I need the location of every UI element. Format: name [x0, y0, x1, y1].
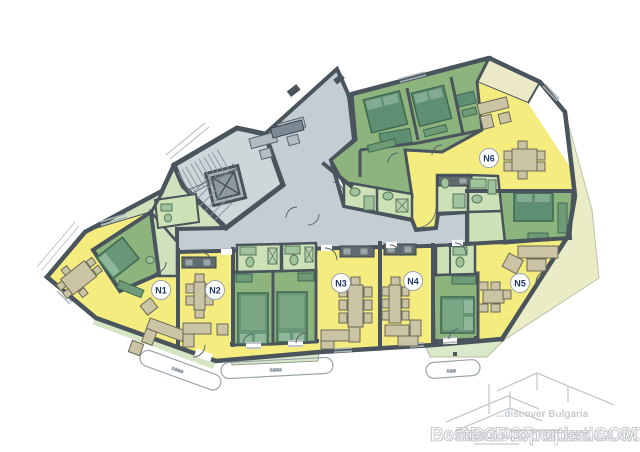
svg-text:1.2x6.8: 1.2x6.8 [270, 368, 282, 372]
svg-text:1.2x3: 1.2x3 [447, 369, 456, 373]
svg-text:N2: N2 [209, 286, 221, 296]
svg-text:N6: N6 [483, 154, 495, 164]
svg-text:N5: N5 [514, 279, 526, 289]
svg-text:N4: N4 [407, 277, 419, 287]
svg-text:...discover Bulgaria: ...discover Bulgaria [496, 409, 589, 420]
svg-text:N3: N3 [335, 279, 347, 289]
svg-text:BestBGProperties.COM: BestBGProperties.COM [455, 425, 640, 446]
svg-text:N1: N1 [155, 286, 167, 296]
